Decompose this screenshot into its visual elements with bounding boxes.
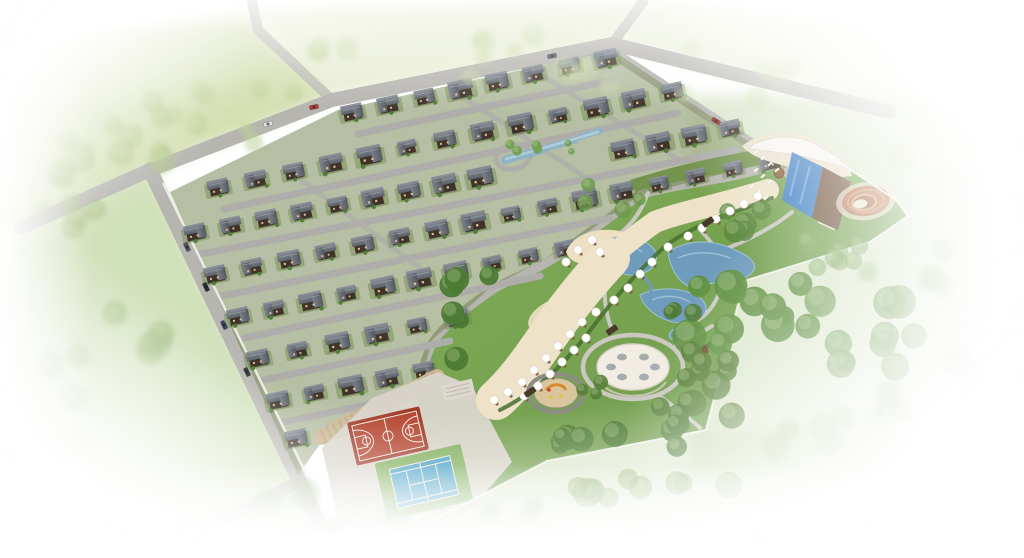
parasol-umbrella (518, 378, 526, 386)
tree-highlight (602, 77, 613, 88)
tree-highlight (253, 82, 263, 92)
tree-highlight (866, 410, 880, 424)
tree-highlight (35, 445, 51, 461)
tree-highlight (762, 295, 777, 310)
tree-highlight (668, 473, 681, 486)
tree-highlight (36, 431, 47, 442)
parasol-umbrella (664, 243, 672, 251)
tree-highlight (810, 260, 820, 270)
parasol-umbrella (554, 342, 562, 350)
tree-highlight (246, 135, 256, 145)
tree-highlight (798, 316, 812, 330)
tree-highlight (948, 348, 964, 364)
tree-highlight (694, 354, 705, 365)
parasol-umbrella (648, 258, 656, 266)
parasol-umbrella (558, 358, 566, 366)
tree-highlight (378, 509, 389, 520)
tree-highlight (395, 516, 406, 527)
tree-highlight (747, 88, 760, 101)
tree-highlight (665, 306, 673, 314)
tree-highlight (1, 205, 13, 217)
tree-highlight (786, 60, 795, 69)
tree-highlight (717, 316, 733, 332)
parasol-umbrella (578, 318, 586, 326)
tree-highlight (800, 234, 811, 245)
parasol-umbrella (582, 334, 590, 342)
tree-highlight (206, 514, 216, 524)
tree-highlight (711, 334, 724, 347)
tree-highlight (757, 62, 769, 74)
parasol-umbrella (740, 200, 748, 208)
tree-highlight (942, 101, 956, 115)
tree-highlight (968, 368, 980, 380)
tree-highlight (680, 393, 692, 405)
play-item-3 (547, 388, 550, 391)
tree-highlight (186, 521, 199, 534)
tree-highlight (64, 195, 75, 206)
tree-highlight (669, 438, 680, 449)
tree-highlight (933, 276, 946, 289)
tree-highlight (39, 353, 55, 369)
tree-highlight (579, 196, 588, 205)
tree-highlight (532, 141, 537, 146)
tree-highlight (447, 269, 461, 283)
tree-highlight (338, 39, 350, 51)
tree-highlight (309, 42, 321, 54)
tree-highlight (830, 352, 845, 367)
tree-highlight (718, 474, 733, 489)
tree-highlight (860, 264, 871, 275)
tree-highlight (966, 403, 981, 418)
tree-highlight (765, 436, 780, 451)
tree-highlight (690, 277, 702, 289)
tree-highlight (616, 202, 625, 211)
tree-highlight (874, 324, 890, 340)
tree-highlight (846, 253, 856, 263)
tree-highlight (188, 115, 200, 127)
tree-highlight (676, 322, 695, 341)
parasol-umbrella (570, 346, 578, 354)
tree-highlight (477, 52, 485, 60)
tree-highlight (718, 272, 736, 290)
tree-highlight (481, 268, 492, 279)
tree-highlight (513, 147, 518, 152)
playground (528, 374, 584, 412)
tree-highlight (105, 302, 119, 316)
tree-highlight (521, 510, 532, 521)
tree-highlight (570, 479, 582, 491)
parasol-umbrella (562, 258, 570, 266)
tree-highlight (69, 346, 82, 359)
tree-highlight (474, 31, 487, 44)
tree-highlight (59, 132, 71, 144)
parasol-umbrella (610, 296, 618, 304)
parasol-umbrella (546, 370, 554, 378)
tree-highlight (591, 388, 598, 395)
tree-highlight (620, 470, 631, 481)
tree-highlight (653, 399, 663, 409)
tree-highlight (583, 179, 591, 187)
tree-highlight (5, 438, 20, 453)
tree-highlight (506, 140, 511, 145)
tree-highlight (827, 250, 838, 261)
tree-highlight (463, 69, 473, 79)
tree-highlight (481, 505, 493, 517)
tree-highlight (791, 274, 804, 287)
tree-highlight (95, 474, 108, 487)
tree-highlight (509, 45, 517, 53)
tree-highlight (678, 87, 688, 97)
parasol-umbrella (624, 284, 632, 292)
tree-highlight (963, 383, 974, 394)
parasol-umbrella (530, 366, 538, 374)
tree-highlight (935, 241, 947, 253)
tree-highlight (294, 482, 310, 498)
tree-highlight (444, 303, 457, 316)
tree-highlight (145, 93, 157, 105)
parasol-umbrella (542, 354, 550, 362)
tree-highlight (679, 370, 690, 381)
tree-highlight (240, 123, 249, 132)
tree-highlight (556, 58, 569, 71)
tree-highlight (578, 385, 585, 392)
parasol-umbrella (588, 236, 596, 244)
tree-highlight (87, 201, 98, 212)
tree-highlight (686, 305, 696, 315)
tree-highlight (833, 409, 846, 422)
tree-highlight (958, 136, 971, 149)
parasol-umbrella (504, 388, 512, 396)
tree-highlight (930, 170, 942, 182)
tree-highlight (595, 376, 603, 384)
tree-highlight (852, 238, 862, 248)
tree-highlight (683, 343, 695, 355)
tree-highlight (287, 86, 296, 95)
tree-highlight (571, 429, 585, 443)
tree-highlight (721, 405, 735, 419)
tree-highlight (106, 117, 117, 128)
tree-highlight (577, 59, 590, 72)
masterplan-render (0, 0, 1024, 558)
tree-highlight (808, 288, 825, 305)
tree-highlight (600, 489, 611, 500)
tree-highlight (140, 333, 154, 347)
parasol-umbrella (490, 396, 498, 404)
tree-highlight (812, 416, 827, 431)
parasol-umbrella (684, 232, 692, 240)
tree-highlight (726, 221, 739, 234)
tree-highlight (165, 107, 176, 118)
tree-highlight (879, 383, 893, 397)
tree-highlight (36, 202, 46, 212)
tree-highlight (884, 355, 899, 370)
tree-highlight (684, 41, 694, 51)
tree-highlight (828, 332, 843, 347)
tree-highlight (907, 108, 921, 122)
tree-highlight (668, 416, 678, 426)
tree-highlight (152, 148, 167, 163)
tree-highlight (566, 140, 570, 144)
tree-highlight (780, 421, 792, 433)
tree-highlight (525, 25, 537, 37)
tree-highlight (64, 430, 80, 446)
parasol-umbrella (566, 330, 574, 338)
tree-highlight (404, 536, 416, 548)
tree-highlight (330, 520, 340, 530)
tree-highlight (440, 528, 451, 539)
tree-highlight (15, 460, 25, 470)
play-item-1 (549, 395, 553, 399)
tree-highlight (754, 202, 765, 213)
tree-highlight (447, 349, 460, 362)
tree-highlight (110, 141, 125, 156)
tree-highlight (876, 289, 894, 307)
tree-highlight (49, 163, 63, 177)
scene-canvas (0, 0, 1024, 558)
parasol-umbrella (574, 246, 582, 254)
tree-highlight (719, 352, 731, 364)
tree-highlight (64, 387, 79, 402)
parasol-umbrella (636, 270, 644, 278)
tree-highlight (890, 145, 906, 161)
parasol-umbrella (726, 207, 734, 215)
tree-highlight (605, 423, 619, 437)
parasol-umbrella (592, 308, 600, 316)
play-item-2 (559, 394, 563, 398)
tree-highlight (569, 149, 573, 153)
tree-highlight (904, 325, 918, 339)
parasol-umbrella (596, 248, 604, 256)
tree-highlight (257, 492, 272, 507)
tree-highlight (555, 429, 564, 438)
tree-highlight (634, 194, 641, 201)
tree-highlight (192, 82, 202, 92)
